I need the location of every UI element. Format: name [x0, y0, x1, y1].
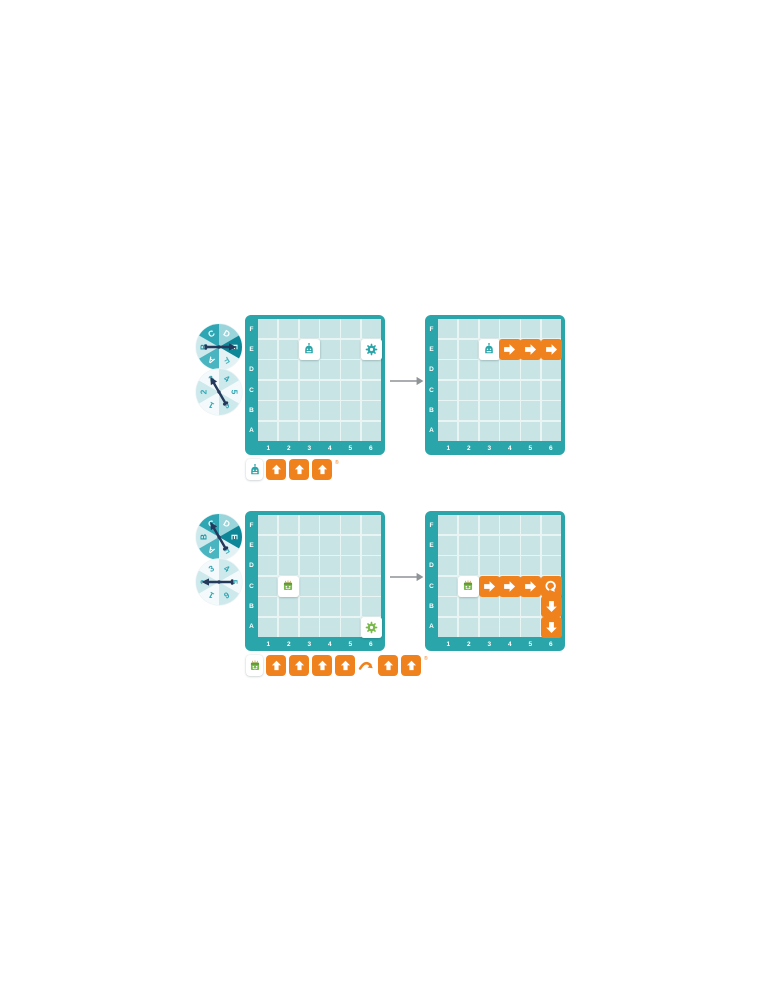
grid-cell — [279, 556, 298, 575]
grid-cell — [459, 618, 478, 637]
arrow-right-tile — [520, 576, 541, 597]
grid-cell — [320, 556, 339, 575]
row-label: F — [425, 515, 438, 535]
col-label: 2 — [279, 637, 300, 651]
col-labels: 123456 — [438, 441, 561, 455]
arrow-right-tile — [499, 576, 520, 597]
row-labels: FEDCBA — [425, 319, 438, 441]
arrow-icon — [544, 620, 559, 635]
col-label: 6 — [541, 637, 562, 651]
turn-arrow-icon — [543, 578, 559, 594]
grid-cell — [500, 556, 519, 575]
grid-cell — [480, 618, 499, 637]
grid-cell — [258, 536, 277, 555]
row-label: D — [245, 360, 258, 380]
col-label: 2 — [459, 441, 480, 455]
grid-cell — [320, 515, 339, 534]
row-label: E — [245, 339, 258, 359]
after-grid: FEDCBA123456 — [425, 511, 565, 651]
right-arrow-icon — [388, 570, 426, 584]
grid-cell — [459, 597, 478, 616]
grid-cell — [459, 515, 478, 534]
row-labels: FEDCBA — [245, 515, 258, 637]
robot-green-tile — [458, 576, 479, 597]
grid-cell — [500, 597, 519, 616]
arrow-icon — [502, 342, 517, 357]
col-label: 6 — [541, 441, 562, 455]
grid-cell — [521, 340, 540, 359]
row-label: D — [425, 360, 438, 380]
row-label: C — [245, 380, 258, 400]
col-label: 6 — [361, 637, 382, 651]
arrow-icon — [339, 659, 352, 672]
arrow-right-tile — [541, 339, 562, 360]
grid-cell — [438, 618, 457, 637]
grid-cell — [438, 536, 457, 555]
arrow-icon — [316, 659, 329, 672]
col-label: 4 — [500, 441, 521, 455]
grid-cell — [362, 340, 381, 359]
spinner-wheel: ABCDEF — [195, 513, 243, 561]
grid-cell — [500, 536, 519, 555]
arrow-down-tile — [541, 596, 562, 617]
grid-cell — [480, 515, 499, 534]
grid-cell — [279, 515, 298, 534]
robot-teal-tile — [299, 339, 320, 360]
col-labels: 123456 — [258, 637, 381, 651]
forward-command-tile — [378, 655, 398, 676]
grid-cell — [480, 340, 499, 359]
row-label: E — [245, 535, 258, 555]
robot-green-command-tile — [246, 655, 263, 676]
grid-cells — [258, 515, 381, 637]
col-labels: 123456 — [258, 441, 381, 455]
col-label: 2 — [279, 441, 300, 455]
forward-command-tile — [335, 655, 355, 676]
col-label: 5 — [520, 637, 541, 651]
robot-icon — [482, 342, 496, 356]
col-label: 5 — [340, 637, 361, 651]
svg-text:E: E — [230, 534, 240, 540]
col-label: 6 — [361, 441, 382, 455]
command-sequence: ® — [246, 654, 428, 677]
grid-cell — [480, 597, 499, 616]
grid-cell — [320, 597, 339, 616]
grid-cell — [500, 515, 519, 534]
grid-cell — [459, 577, 478, 596]
grid-cell — [521, 556, 540, 575]
row-label: B — [245, 596, 258, 616]
grid-cell — [542, 618, 561, 637]
turn-right-tile — [541, 576, 562, 597]
col-label: 2 — [459, 637, 480, 651]
grid-cell — [300, 556, 319, 575]
grid-cell — [542, 597, 561, 616]
forward-command-tile — [266, 655, 286, 676]
grid-cell — [279, 618, 298, 637]
grid-cell — [521, 515, 540, 534]
arrow-icon — [523, 579, 538, 594]
grid-cell — [459, 556, 478, 575]
grid-cell — [362, 515, 381, 534]
gear-green-tile — [361, 617, 382, 638]
row-label: D — [425, 556, 438, 576]
grid-cell — [258, 515, 277, 534]
before-grid: FEDCBA123456 — [245, 511, 385, 651]
grid-cell — [521, 597, 540, 616]
green-robot-icon — [248, 659, 262, 673]
grid-cell — [438, 597, 457, 616]
row-label: B — [425, 596, 438, 616]
grid-cell — [300, 597, 319, 616]
row-label: F — [245, 319, 258, 339]
grid-cell — [542, 515, 561, 534]
grid-cell — [279, 536, 298, 555]
arrow-icon — [523, 342, 538, 357]
green-robot-icon — [281, 579, 295, 593]
grid-cell — [438, 515, 457, 534]
row-label: A — [245, 421, 258, 441]
registered-mark: ® — [424, 656, 428, 662]
turn-right-arrow-icon — [358, 657, 375, 674]
forward-command-tile — [312, 655, 332, 676]
col-label: 3 — [299, 441, 320, 455]
grid-cell — [500, 340, 519, 359]
grid-cell — [459, 536, 478, 555]
arrow-icon — [293, 659, 306, 672]
arrow-icon — [544, 342, 559, 357]
arrow-down-tile — [541, 617, 562, 638]
row-label: A — [425, 617, 438, 637]
robot-icon — [302, 342, 316, 356]
transform-arrow-icon — [388, 570, 426, 584]
grid-cell — [362, 536, 381, 555]
grid-cell — [258, 577, 277, 596]
grid-cell — [300, 515, 319, 534]
arrow-icon — [270, 659, 283, 672]
arrow-icon — [502, 579, 517, 594]
grid-cell — [258, 556, 277, 575]
col-label: 5 — [340, 441, 361, 455]
gear-icon — [364, 620, 379, 635]
example-2: ABCDEF 123456 FEDCBA123456 FEDCBA123456 … — [0, 0, 768, 993]
grid-cell — [341, 556, 360, 575]
grid-cell — [480, 536, 499, 555]
row-label: F — [425, 319, 438, 339]
col-label: 3 — [479, 637, 500, 651]
number-spinner: 123456 — [195, 558, 243, 606]
row-label: B — [245, 400, 258, 420]
row-label: C — [425, 380, 438, 400]
grid-cell — [438, 556, 457, 575]
arrow-icon — [544, 599, 559, 614]
grid-cell — [341, 618, 360, 637]
row-label: E — [425, 339, 438, 359]
grid-cell — [258, 618, 277, 637]
forward-command-tile — [289, 655, 309, 676]
row-label: C — [245, 576, 258, 596]
grid-cell — [341, 597, 360, 616]
grid-cell — [300, 536, 319, 555]
grid-cell — [258, 597, 277, 616]
col-label: 1 — [258, 637, 279, 651]
col-label: 1 — [258, 441, 279, 455]
col-label: 5 — [520, 441, 541, 455]
col-label: 4 — [320, 637, 341, 651]
row-label: E — [425, 535, 438, 555]
row-label: A — [245, 617, 258, 637]
robot-teal-tile — [479, 339, 500, 360]
arrow-icon — [482, 579, 497, 594]
green-robot-icon — [461, 579, 475, 593]
grid-cell — [341, 577, 360, 596]
forward-command-tile — [401, 655, 421, 676]
spinner-wheel: 123456 — [195, 558, 243, 606]
row-labels: FEDCBA — [425, 515, 438, 637]
arrow-right-tile — [479, 576, 500, 597]
grid-cell — [438, 577, 457, 596]
row-label: A — [425, 421, 438, 441]
row-label: B — [425, 400, 438, 420]
col-label: 3 — [299, 637, 320, 651]
turn-right-command-icon — [358, 657, 375, 674]
col-label: 3 — [479, 441, 500, 455]
grid-cell — [279, 577, 298, 596]
svg-text:B: B — [199, 534, 209, 540]
col-label: 1 — [438, 441, 459, 455]
col-label: 4 — [500, 637, 521, 651]
letter-spinner: ABCDEF — [195, 513, 243, 561]
grid-cell — [341, 515, 360, 534]
grid-cell — [300, 577, 319, 596]
robot-green-tile — [278, 576, 299, 597]
grid-cell — [480, 556, 499, 575]
grid-cell — [362, 597, 381, 616]
grid-cell — [480, 577, 499, 596]
grid-cell — [320, 536, 339, 555]
grid-cells — [438, 515, 561, 637]
grid-cell — [300, 618, 319, 637]
grid-cell — [521, 618, 540, 637]
grid-cell — [362, 618, 381, 637]
row-label: C — [425, 576, 438, 596]
grid-cell — [320, 618, 339, 637]
grid-cell — [542, 536, 561, 555]
gear-teal-tile — [361, 339, 382, 360]
grid-cell — [362, 556, 381, 575]
arrow-icon — [382, 659, 395, 672]
grid-cell — [542, 556, 561, 575]
grid-cell — [500, 618, 519, 637]
grid-cell — [500, 577, 519, 596]
grid-cell — [320, 577, 339, 596]
grid-cell — [300, 340, 319, 359]
row-label: F — [245, 515, 258, 535]
arrow-right-tile — [499, 339, 520, 360]
grid-cell — [362, 577, 381, 596]
arrow-icon — [405, 659, 418, 672]
worksheet-canvas: ABCDEF 123456 FEDCBA123456 FEDCBA123456 … — [0, 0, 768, 993]
col-label: 4 — [320, 441, 341, 455]
row-labels: FEDCBA — [245, 319, 258, 441]
grid-cell — [521, 577, 540, 596]
grid-cell — [341, 536, 360, 555]
row-label: D — [245, 556, 258, 576]
grid-cell — [279, 597, 298, 616]
col-label: 1 — [438, 637, 459, 651]
col-labels: 123456 — [438, 637, 561, 651]
grid-cell — [521, 536, 540, 555]
grid-cell — [542, 340, 561, 359]
arrow-right-tile — [520, 339, 541, 360]
grid-cell — [542, 577, 561, 596]
gear-icon — [364, 342, 379, 357]
